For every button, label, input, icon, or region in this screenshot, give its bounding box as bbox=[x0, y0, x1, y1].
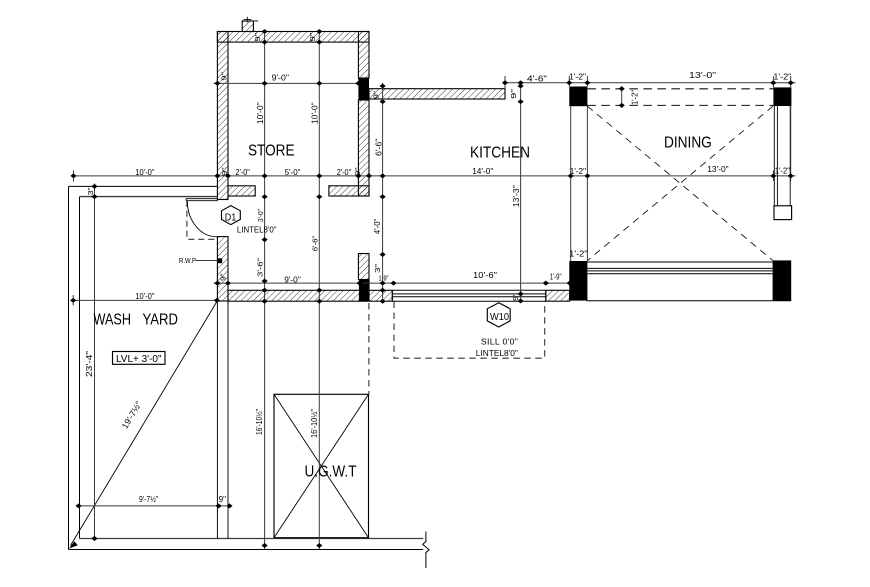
svg-text:3'-6": 3'-6" bbox=[256, 258, 265, 277]
svg-text:1'-2": 1'-2" bbox=[630, 90, 640, 105]
svg-text:4'-0": 4'-0" bbox=[372, 219, 382, 234]
svg-text:R.W.P: R.W.P bbox=[179, 256, 196, 265]
svg-text:9": 9" bbox=[219, 273, 228, 281]
svg-text:LINTEL8'0": LINTEL8'0" bbox=[476, 348, 518, 358]
svg-text:1'-2": 1'-2" bbox=[569, 72, 586, 82]
svg-text:13'-3": 13'-3" bbox=[511, 185, 521, 207]
svg-text:1'-2": 1'-2" bbox=[773, 72, 791, 82]
svg-text:10'-0": 10'-0" bbox=[135, 291, 154, 301]
svg-text:1'-9": 1'-9" bbox=[550, 271, 562, 281]
svg-text:2'-0": 2'-0" bbox=[337, 167, 352, 177]
svg-text:19'-7½": 19'-7½" bbox=[120, 400, 144, 431]
svg-text:D1: D1 bbox=[225, 211, 237, 223]
svg-text:3": 3" bbox=[373, 264, 382, 273]
svg-text:9": 9" bbox=[511, 293, 520, 301]
svg-text:YARD: YARD bbox=[143, 312, 179, 329]
svg-text:5'-0": 5'-0" bbox=[285, 167, 301, 177]
svg-text:3": 3" bbox=[86, 187, 95, 195]
svg-text:2'-0": 2'-0" bbox=[235, 167, 250, 177]
svg-text:9'-0": 9'-0" bbox=[284, 275, 301, 285]
svg-text:16'-10½": 16'-10½" bbox=[254, 409, 264, 435]
svg-text:LINTEL8'0": LINTEL8'0" bbox=[237, 224, 277, 234]
svg-text:9": 9" bbox=[372, 91, 381, 99]
svg-text:9": 9" bbox=[220, 167, 229, 176]
svg-text:10'-6": 10'-6" bbox=[473, 270, 497, 280]
svg-text:10'-0": 10'-0" bbox=[135, 167, 154, 177]
svg-text:9": 9" bbox=[353, 167, 362, 176]
svg-text:U.G.W.T: U.G.W.T bbox=[305, 464, 357, 481]
svg-text:13'-0": 13'-0" bbox=[689, 70, 716, 80]
svg-text:6'-6": 6'-6" bbox=[311, 235, 320, 251]
svg-text:STORE: STORE bbox=[248, 143, 295, 160]
svg-text:KITCHEN: KITCHEN bbox=[470, 144, 530, 161]
svg-text:3'-0": 3'-0" bbox=[256, 209, 265, 222]
svg-text:10'-0": 10'-0" bbox=[255, 102, 265, 124]
svg-text:1-9": 1-9" bbox=[379, 274, 389, 283]
svg-text:LVL+ 3'-0": LVL+ 3'-0" bbox=[116, 354, 162, 365]
svg-text:9": 9" bbox=[308, 32, 317, 41]
svg-text:9": 9" bbox=[253, 33, 262, 42]
svg-text:9": 9" bbox=[509, 88, 518, 98]
svg-text:WASH: WASH bbox=[94, 312, 132, 329]
svg-text:W10: W10 bbox=[490, 312, 509, 323]
svg-text:9": 9" bbox=[219, 494, 226, 504]
svg-text:9'-0": 9'-0" bbox=[272, 73, 289, 83]
svg-text:13'-0": 13'-0" bbox=[707, 164, 729, 174]
svg-text:23'-4": 23'-4" bbox=[84, 351, 94, 377]
svg-text:16'-10½": 16'-10½" bbox=[309, 409, 319, 438]
svg-text:10'-0": 10'-0" bbox=[310, 102, 320, 124]
svg-text:6'-6": 6'-6" bbox=[373, 139, 383, 156]
svg-text:4'-6": 4'-6" bbox=[527, 73, 547, 83]
svg-text:14'-0": 14'-0" bbox=[472, 166, 493, 176]
svg-text:SILL 0'0": SILL 0'0" bbox=[481, 336, 518, 346]
svg-text:DINING: DINING bbox=[664, 134, 712, 151]
svg-text:1'-2": 1'-2" bbox=[570, 166, 586, 176]
svg-text:9'-7½": 9'-7½" bbox=[139, 494, 158, 504]
svg-text:1'-2": 1'-2" bbox=[569, 248, 587, 258]
svg-text:1'-2": 1'-2" bbox=[775, 166, 790, 176]
svg-text:9": 9" bbox=[220, 72, 229, 81]
